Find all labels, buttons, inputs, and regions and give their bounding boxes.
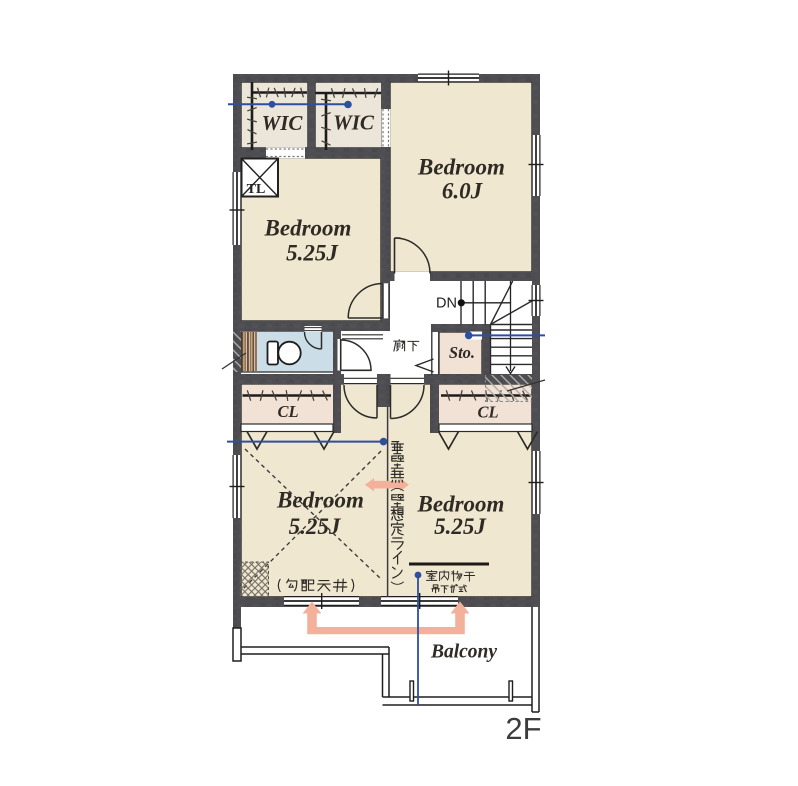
svg-text:5.25J: 5.25J (434, 514, 487, 539)
svg-text:5.25J: 5.25J (289, 514, 342, 539)
svg-text:Bedroom: Bedroom (264, 215, 352, 240)
svg-text:6.0J: 6.0J (442, 178, 484, 203)
svg-text:Sto.: Sto. (449, 343, 475, 362)
svg-text:Bedroom: Bedroom (417, 491, 505, 516)
svg-text:Bedroom: Bedroom (417, 154, 505, 179)
svg-text:WIC: WIC (333, 111, 375, 135)
svg-text:WIC: WIC (262, 111, 304, 135)
svg-text:CL: CL (477, 403, 498, 422)
svg-text:Bedroom: Bedroom (276, 487, 364, 512)
svg-text:Balcony: Balcony (430, 642, 497, 663)
svg-text:5.25J: 5.25J (286, 240, 339, 265)
svg-text:CL: CL (277, 402, 298, 421)
svg-text:DN: DN (436, 295, 457, 311)
svg-text:2F: 2F (505, 711, 541, 746)
svg-text:TL: TL (247, 182, 266, 197)
